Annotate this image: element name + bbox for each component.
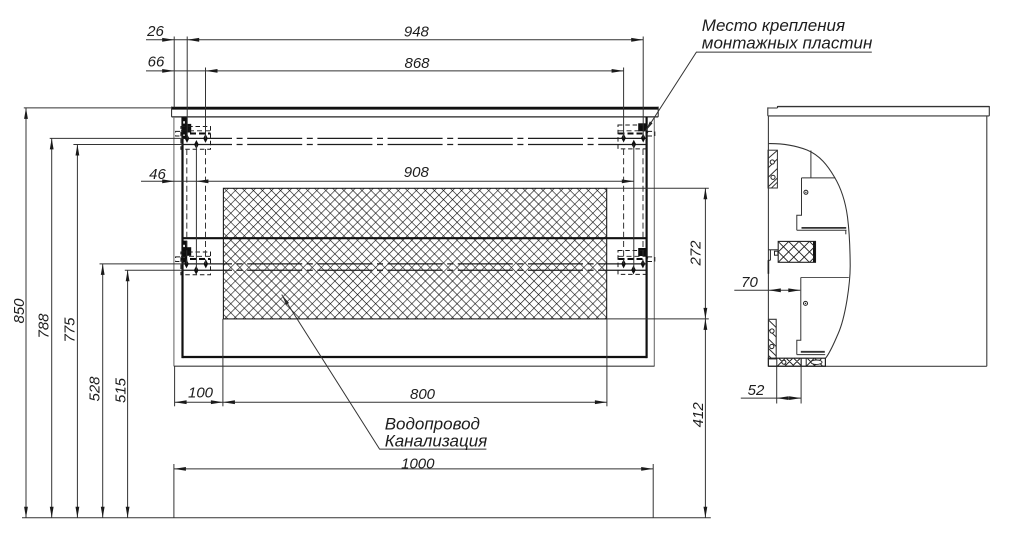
svg-text:908: 908 (404, 164, 430, 181)
svg-text:948: 948 (404, 24, 430, 41)
svg-text:800: 800 (410, 386, 436, 403)
svg-text:100: 100 (188, 385, 214, 402)
svg-text:Канализация: Канализация (385, 432, 488, 451)
svg-text:850: 850 (11, 298, 28, 324)
svg-text:66: 66 (148, 54, 165, 71)
svg-text:515: 515 (113, 377, 130, 403)
svg-text:52: 52 (748, 382, 765, 399)
svg-text:528: 528 (87, 376, 104, 402)
svg-text:70: 70 (741, 274, 758, 291)
svg-text:775: 775 (62, 317, 79, 343)
svg-text:1000: 1000 (401, 456, 435, 473)
svg-text:868: 868 (404, 55, 430, 72)
svg-text:412: 412 (690, 402, 707, 428)
svg-text:монтажных пластин: монтажных пластин (702, 34, 873, 53)
svg-text:272: 272 (688, 240, 705, 267)
svg-text:Место крепления: Место крепления (702, 16, 845, 35)
svg-text:788: 788 (36, 313, 53, 339)
svg-text:26: 26 (146, 23, 164, 40)
svg-text:46: 46 (149, 166, 166, 183)
